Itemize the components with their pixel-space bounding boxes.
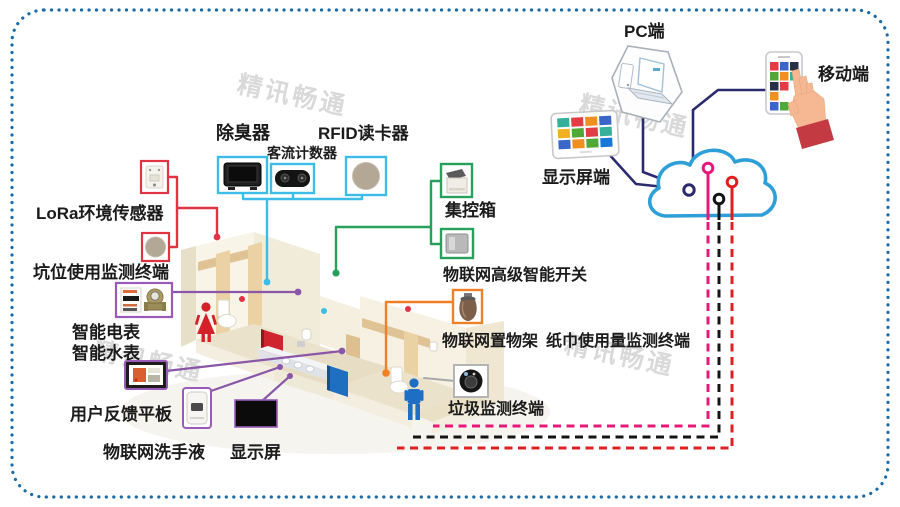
display-screen-device — [235, 400, 277, 427]
label-rfid-reader: RFID读卡器 — [318, 123, 410, 143]
label-iot-smart-switch: 物联网高级智能开关 — [443, 265, 587, 284]
iot-shelf-device — [453, 290, 482, 323]
diagram-svg: 精讯畅通 精讯畅通 精讯畅通 精讯畅通 — [0, 0, 900, 507]
pit-usage-monitor-device — [116, 283, 172, 317]
red-endpoint-dot — [727, 177, 737, 187]
watermark-text: 精讯畅通 — [235, 70, 350, 121]
label-smart-electric-meter: 智能电表 — [72, 322, 141, 342]
paper-roll — [302, 329, 311, 340]
cloud-node-dot — [684, 185, 694, 195]
passenger-counter-device — [271, 164, 314, 193]
pink-endpoint-dot — [703, 163, 713, 173]
left-stall-partition — [248, 242, 262, 330]
deodorizer-device — [218, 157, 267, 193]
label-iot-hand-sanitizer: 物联网洗手液 — [103, 442, 205, 462]
central-control-box-device — [441, 164, 472, 197]
black-endpoint-dot — [714, 194, 724, 204]
label-display-terminal: 显示屏端 — [542, 167, 610, 187]
cloud — [650, 150, 775, 216]
label-garbage-monitor: 垃圾监测终端 — [448, 399, 544, 418]
paper-holder — [430, 342, 437, 351]
iot-smart-switch-device — [441, 229, 473, 258]
display-terminal — [551, 110, 619, 158]
garbage-monitor-device — [454, 365, 488, 397]
label-mobile-terminal: 移动端 — [818, 64, 869, 84]
rfid-reader-device — [346, 157, 386, 195]
wall-fixture — [297, 341, 305, 347]
label-display-screen: 显示屏 — [230, 443, 281, 462]
left-outer-wall — [181, 246, 196, 347]
lora-link-line — [169, 208, 177, 247]
iot-restroom-architecture-diagram: 精讯畅通 精讯畅通 精讯畅通 精讯畅通 — [0, 0, 900, 507]
label-passenger-counter: 客流计数器 — [266, 145, 338, 161]
lora-sensor-device-1 — [141, 161, 168, 193]
label-paper-usage-monitor: 纸巾使用量监测终端 — [546, 331, 690, 350]
label-iot-shelf: 物联网置物架 — [442, 331, 538, 350]
lora-sensor-device-2 — [142, 233, 169, 261]
iot-hand-sanitizer-device — [183, 388, 211, 428]
label-pc-terminal: PC端 — [624, 21, 665, 41]
label-deodorizer: 除臭器 — [216, 122, 271, 143]
label-lora-env-sensor: LoRa环境传感器 — [36, 203, 164, 223]
user-feedback-tablet-device — [125, 361, 167, 389]
lora-link-line — [168, 177, 217, 237]
label-user-feedback-tablet: 用户反馈平板 — [70, 404, 173, 424]
label-central-control-box: 集控箱 — [444, 200, 496, 220]
label-pit-usage-monitor: 坑位使用监测终端 — [33, 262, 169, 282]
